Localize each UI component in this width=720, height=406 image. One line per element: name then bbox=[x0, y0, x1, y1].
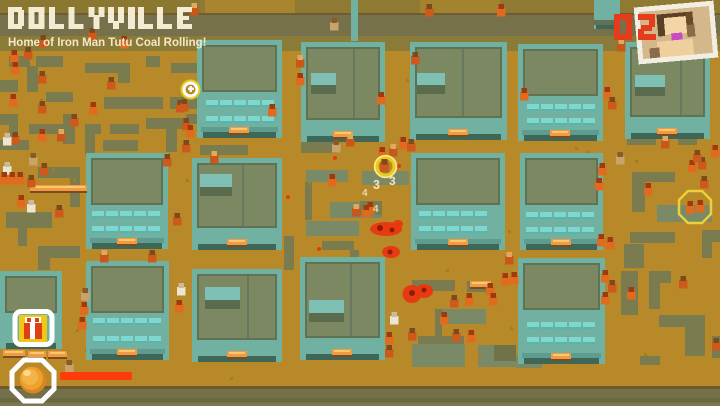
svg-text:3: 3 bbox=[389, 174, 396, 188]
svg-text:Home of Iron Man Tutu Coal Rol: Home of Iron Man Tutu Coal Rolling! bbox=[8, 37, 206, 49]
svg-text:4: 4 bbox=[362, 188, 368, 199]
svg-text:4: 4 bbox=[373, 204, 379, 215]
svg-text:3: 3 bbox=[373, 178, 380, 192]
